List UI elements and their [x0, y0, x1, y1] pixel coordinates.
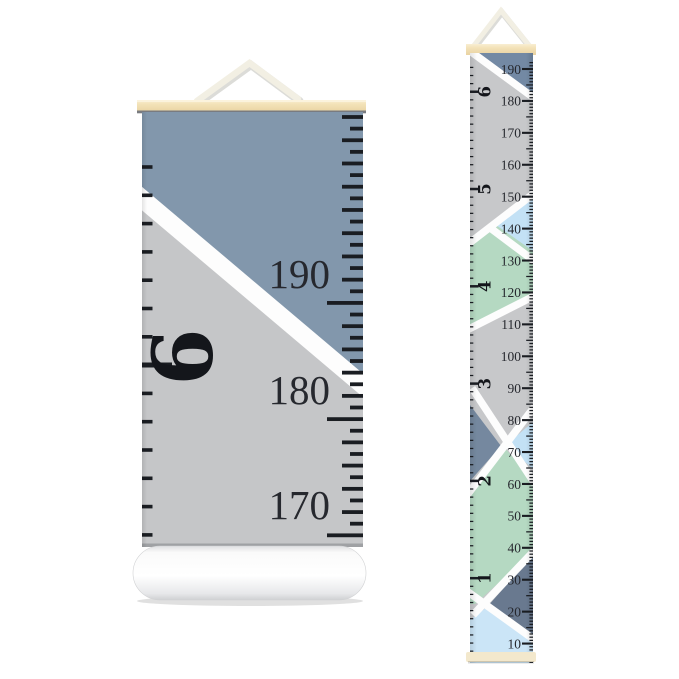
full-cm-minor-tick: [529, 640, 533, 641]
full-cm-major-tick: [522, 451, 533, 453]
full-cm-minor-tick: [529, 225, 533, 226]
full-cm-minor-tick: [529, 155, 533, 156]
full-cm-label: 150: [501, 189, 522, 204]
full-inch-tick: [470, 269, 473, 270]
full-cm-minor-tick: [529, 391, 533, 392]
full-cm-minor-tick: [529, 448, 533, 449]
full-cm-minor-tick: [526, 276, 533, 277]
full-cm-minor-tick: [529, 238, 533, 239]
closeup-cm-tick: [350, 452, 363, 456]
full-cm-minor-tick: [529, 368, 533, 369]
full-cm-minor-tick: [529, 305, 533, 306]
full-cm-minor-tick: [526, 499, 533, 500]
full-inch-tick: [470, 407, 473, 408]
full-cm-minor-tick: [529, 202, 533, 203]
full-cm-minor-tick: [529, 617, 533, 618]
full-cm-label: 160: [501, 158, 522, 173]
full-chart-canvas: 1901801701601501401301201101009080706050…: [463, 48, 538, 663]
full-cm-label: 120: [501, 285, 522, 300]
full-cm-minor-tick: [526, 404, 533, 405]
full-cm-minor-tick: [529, 234, 533, 235]
closeup-cm-tick: [350, 475, 363, 479]
full-cm-minor-tick: [529, 151, 533, 152]
full-inch-tick: [470, 488, 473, 489]
full-cm-label: 170: [501, 126, 522, 141]
full-cm-minor-tick: [529, 378, 533, 379]
closeup-cm-tick: [327, 301, 363, 305]
full-foot-numeral-text: 1: [476, 572, 495, 583]
full-cm-minor-tick: [529, 295, 533, 296]
full-inch-tick: [470, 213, 473, 214]
closeup-cm-tick: [350, 359, 363, 363]
full-cm-major-tick: [522, 323, 533, 325]
full-cm-minor-tick: [529, 257, 533, 258]
closeup-cm-tick: [342, 231, 363, 235]
full-inch-tick: [470, 521, 473, 522]
full-cm-minor-tick: [529, 289, 533, 290]
full-cm-minor-tick: [529, 321, 533, 322]
closeup-cm-tick: [350, 150, 363, 154]
full-cm-minor-tick: [529, 423, 533, 424]
full-cm-minor-tick: [526, 180, 533, 181]
full-inch-tick: [470, 156, 473, 157]
closeup-cm-tick: [350, 243, 363, 247]
full-inch-tick: [470, 140, 473, 141]
full-inch-tick: [470, 618, 473, 619]
closeup-cm-tick: [327, 533, 363, 537]
full-cm-major-tick: [522, 259, 533, 261]
full-cm-minor-tick: [529, 123, 533, 124]
full-foot-numeral: 1: [476, 572, 495, 583]
closeup-cm-tick: [342, 464, 363, 468]
closeup-cm-label: 190: [269, 251, 331, 297]
full-cm-minor-tick: [529, 458, 533, 459]
full-cm-major-tick: [522, 132, 533, 134]
full-cm-minor-tick: [529, 247, 533, 248]
full-cm-minor-tick: [529, 496, 533, 497]
full-inch-tick: [470, 561, 473, 562]
wood-bar-highlight: [137, 100, 366, 102]
closeup-cm-tick: [350, 336, 363, 340]
full-cm-minor-tick: [529, 349, 533, 350]
full-cm-minor-tick: [529, 592, 533, 593]
full-cm-minor-tick: [529, 407, 533, 408]
full-cm-minor-tick: [529, 525, 533, 526]
full-inch-tick: [470, 594, 473, 595]
full-cm-label: 50: [508, 509, 522, 524]
full-cm-minor-tick: [529, 384, 533, 385]
closeup-cm-tick: [350, 173, 363, 177]
full-cm-minor-tick: [529, 445, 533, 446]
full-cm-minor-tick: [526, 84, 533, 85]
full-cm-minor-tick: [529, 72, 533, 73]
closeup-cm-tick: [350, 406, 363, 410]
full-inch-tick: [470, 610, 473, 611]
full-cm-minor-tick: [529, 88, 533, 89]
full-cm-minor-tick: [529, 97, 533, 98]
full-cm-minor-tick: [529, 413, 533, 414]
full-cm-minor-tick: [529, 493, 533, 494]
full-cm-minor-tick: [529, 633, 533, 634]
full-inch-tick: [470, 115, 473, 116]
full-cm-minor-tick: [526, 627, 533, 628]
full-cm-minor-tick: [529, 215, 533, 216]
full-cm-minor-tick: [529, 605, 533, 606]
full-inch-tick: [470, 302, 473, 303]
full-inch-tick: [470, 237, 473, 238]
full-right-shade: [526, 53, 533, 663]
full-foot-numeral: 2: [476, 475, 495, 486]
closeup-cm-tick: [342, 510, 363, 514]
closeup-cm-tick: [327, 417, 363, 421]
full-cm-minor-tick: [526, 435, 533, 436]
full-cm-minor-tick: [529, 630, 533, 631]
full-cm-minor-tick: [529, 570, 533, 571]
full-cm-minor-tick: [529, 534, 533, 535]
full-cm-minor-tick: [526, 212, 533, 213]
full-cm-label: 20: [508, 604, 522, 619]
full-inch-tick: [470, 83, 473, 84]
closeup-cm-tick: [342, 115, 363, 119]
full-cm-minor-tick: [529, 231, 533, 232]
full-inch-tick: [470, 132, 473, 133]
full-cm-minor-tick: [526, 116, 533, 117]
full-cm-minor-tick: [529, 91, 533, 92]
full-cm-label: 60: [508, 477, 522, 492]
full-cm-minor-tick: [529, 142, 533, 143]
full-inch-tick: [470, 513, 473, 514]
full-inch-tick: [470, 148, 473, 149]
full-cm-minor-tick: [529, 624, 533, 625]
full-cm-minor-tick: [529, 343, 533, 344]
full-inch-tick: [470, 569, 473, 570]
full-inch-tick: [470, 172, 473, 173]
full-cm-label: 190: [501, 62, 522, 77]
full-inch-tick: [470, 164, 473, 165]
full-cm-minor-tick: [526, 308, 533, 309]
full-cm-major-tick: [522, 483, 533, 485]
full-cm-major-tick: [522, 579, 533, 581]
full-cm-minor-tick: [529, 416, 533, 417]
full-cm-minor-tick: [529, 209, 533, 210]
full-cm-minor-tick: [529, 103, 533, 104]
full-cm-minor-tick: [529, 317, 533, 318]
full-cm-label: 110: [501, 317, 521, 332]
growth-chart-product-photo: 1901801706: [0, 0, 679, 679]
full-inch-tick: [470, 440, 473, 441]
full-foot-numeral-text: 5: [476, 183, 495, 194]
full-inch-tick: [470, 75, 473, 76]
full-inch-tick: [470, 399, 473, 400]
full-cm-minor-tick: [529, 426, 533, 427]
full-cm-minor-tick: [529, 502, 533, 503]
full-cm-minor-tick: [529, 464, 533, 465]
closeup-cm-tick: [350, 382, 363, 386]
full-cm-major-tick: [522, 355, 533, 357]
full-cm-minor-tick: [529, 582, 533, 583]
fabric-roll: [133, 546, 366, 600]
full-cm-minor-tick: [529, 126, 533, 127]
full-cm-minor-tick: [529, 330, 533, 331]
full-inch-tick: [470, 180, 473, 181]
closeup-cm-tick: [342, 487, 363, 491]
full-cm-minor-tick: [529, 394, 533, 395]
full-cm-minor-tick: [529, 646, 533, 647]
full-cm-minor-tick: [529, 222, 533, 223]
full-cm-label: 180: [501, 94, 522, 109]
full-inch-tick: [470, 342, 473, 343]
full-cm-label: 130: [501, 253, 522, 268]
full-cm-minor-tick: [529, 544, 533, 545]
full-cm-label: 40: [508, 541, 522, 556]
full-cm-minor-tick: [529, 298, 533, 299]
full-cm-minor-tick: [529, 522, 533, 523]
full-cm-minor-tick: [529, 538, 533, 539]
full-cm-minor-tick: [529, 566, 533, 567]
full-cm-major-tick: [522, 643, 533, 645]
full-inch-tick: [470, 634, 473, 635]
full-cm-minor-tick: [529, 442, 533, 443]
full-inch-tick: [470, 456, 473, 457]
full-inch-tick: [470, 472, 473, 473]
full-cm-minor-tick: [529, 429, 533, 430]
full-cm-minor-tick: [529, 75, 533, 76]
full-cm-minor-tick: [529, 352, 533, 353]
full-cm-minor-tick: [529, 362, 533, 363]
full-cm-minor-tick: [529, 193, 533, 194]
full-cm-minor-tick: [529, 359, 533, 360]
full-cm-minor-tick: [529, 576, 533, 577]
full-cm-major-tick: [522, 228, 533, 230]
full-cm-minor-tick: [529, 528, 533, 529]
full-inch-tick: [470, 651, 473, 652]
full-cm-minor-tick: [529, 400, 533, 401]
full-inch-tick: [470, 586, 473, 587]
full-cm-major-tick: [522, 547, 533, 549]
full-cm-minor-tick: [529, 78, 533, 79]
full-cm-major-tick: [522, 196, 533, 198]
full-inch-tick: [470, 334, 473, 335]
full-cm-minor-tick: [529, 113, 533, 114]
full-inch-tick: [470, 359, 473, 360]
full-inch-tick: [470, 294, 473, 295]
full-foot-numeral-text: 4: [476, 281, 495, 292]
full-inch-tick: [470, 229, 473, 230]
full-cm-minor-tick: [529, 455, 533, 456]
full-cm-minor-tick: [526, 595, 533, 596]
full-cm-minor-tick: [529, 550, 533, 551]
full-cm-minor-tick: [529, 585, 533, 586]
closeup-cm-tick: [342, 348, 363, 352]
full-inch-tick: [470, 642, 473, 643]
full-cm-label: 80: [508, 413, 522, 428]
full-inch-tick: [470, 545, 473, 546]
closeup-canvas: 1901801706: [133, 112, 372, 547]
closeup-cm-tick: [350, 196, 363, 200]
full-inch-tick: [470, 448, 473, 449]
full-inch-tick: [470, 99, 473, 100]
full-inch-tick: [470, 310, 473, 311]
full-cm-minor-tick: [529, 573, 533, 574]
full-cm-minor-tick: [526, 467, 533, 468]
full-inch-tick: [470, 124, 473, 125]
full-cm-minor-tick: [529, 560, 533, 561]
full-inch-tick: [470, 253, 473, 254]
closeup-cm-tick: [342, 138, 363, 142]
full-cm-minor-tick: [529, 311, 533, 312]
full-cm-minor-tick: [529, 145, 533, 146]
full-inch-tick: [470, 375, 473, 376]
full-cm-major-tick: [522, 387, 533, 389]
full-foot-numeral-text: 6: [476, 86, 495, 97]
full-inch-tick: [470, 537, 473, 538]
full-cm-minor-tick: [529, 263, 533, 264]
closeup-cm-tick: [350, 313, 363, 317]
full-cm-minor-tick: [529, 119, 533, 120]
full-inch-tick: [470, 205, 473, 206]
full-cm-minor-tick: [529, 139, 533, 140]
full-cm-minor-tick: [529, 621, 533, 622]
full-inch-tick: [470, 464, 473, 465]
full-cm-major-tick: [522, 291, 533, 293]
full-cm-label: 100: [501, 349, 522, 364]
full-cm-minor-tick: [529, 410, 533, 411]
closeup-cm-tick: [350, 266, 363, 270]
full-inch-tick: [470, 553, 473, 554]
full-cm-minor-tick: [529, 171, 533, 172]
full-inch-tick: [470, 391, 473, 392]
full-cm-label: 70: [508, 445, 522, 460]
full-cm-minor-tick: [526, 531, 533, 532]
full-cm-minor-tick: [526, 244, 533, 245]
full-cm-minor-tick: [529, 250, 533, 251]
full-cm-minor-tick: [529, 186, 533, 187]
full-cm-minor-tick: [529, 541, 533, 542]
full-cm-major-tick: [522, 611, 533, 613]
closeup-cm-tick: [342, 440, 363, 444]
full-cm-minor-tick: [529, 218, 533, 219]
full-cm-minor-tick: [529, 161, 533, 162]
full-cm-minor-tick: [529, 81, 533, 82]
closeup-cm-tick: [342, 324, 363, 328]
full-cm-minor-tick: [526, 148, 533, 149]
canvas-left-shade: [142, 112, 147, 547]
full-foot-numeral: 4: [476, 281, 495, 292]
full-cm-minor-tick: [529, 65, 533, 66]
closeup-cm-tick: [350, 522, 363, 526]
full-cm-minor-tick: [529, 557, 533, 558]
full-cm-minor-tick: [529, 614, 533, 615]
closeup-cm-tick: [350, 289, 363, 293]
full-cm-minor-tick: [529, 266, 533, 267]
full-cm-minor-tick: [526, 563, 533, 564]
full-cm-major-tick: [522, 515, 533, 517]
full-cm-minor-tick: [529, 94, 533, 95]
full-cm-minor-tick: [529, 471, 533, 472]
full-cm-major-tick: [522, 419, 533, 421]
closeup-foot-numeral-text: 6: [136, 328, 232, 385]
closeup-cm-tick: [350, 220, 363, 224]
full-cm-major-tick: [522, 100, 533, 102]
full-cm-minor-tick: [529, 177, 533, 178]
full-foot-numeral-text: 3: [476, 378, 495, 389]
full-inch-tick: [470, 496, 473, 497]
full-cm-minor-tick: [529, 285, 533, 286]
full-cm-minor-tick: [529, 314, 533, 315]
full-cm-label: 140: [501, 221, 522, 236]
closeup-cm-label: 180: [269, 367, 331, 413]
full-cm-minor-tick: [529, 509, 533, 510]
full-cm-minor-tick: [526, 372, 533, 373]
full-inch-tick: [470, 278, 473, 279]
full-cm-minor-tick: [526, 340, 533, 341]
full-foot-numeral: 3: [476, 378, 495, 389]
closeup-cm-tick: [342, 208, 363, 212]
full-left-shade: [470, 53, 477, 663]
full-foot-numeral: 6: [476, 86, 495, 97]
full-cm-minor-tick: [529, 107, 533, 108]
full-inch-tick: [470, 432, 473, 433]
closeup-cm-tick: [342, 255, 363, 259]
full-cm-label: 10: [508, 636, 522, 651]
full-cm-minor-tick: [529, 637, 533, 638]
full-cm-minor-tick: [529, 375, 533, 376]
full-cm-minor-tick: [529, 490, 533, 491]
full-cm-minor-tick: [529, 487, 533, 488]
full-cm-minor-tick: [529, 254, 533, 255]
full-cm-minor-tick: [529, 273, 533, 274]
bottom-bar-shadow: [468, 661, 534, 664]
full-cm-minor-tick: [529, 518, 533, 519]
closeup-cm-label: 170: [269, 482, 331, 528]
full-cm-minor-tick: [529, 301, 533, 302]
full-cm-minor-tick: [529, 397, 533, 398]
full-inch-tick: [470, 326, 473, 327]
full-cm-minor-tick: [529, 183, 533, 184]
full-cm-minor-tick: [529, 135, 533, 136]
full-cm-minor-tick: [529, 199, 533, 200]
full-cm-minor-tick: [529, 474, 533, 475]
full-foot-numeral-text: 2: [476, 475, 495, 486]
full-inch-tick: [470, 221, 473, 222]
full-cm-minor-tick: [529, 333, 533, 334]
full-cm-minor-tick: [529, 601, 533, 602]
full-inch-tick: [470, 626, 473, 627]
closeup-cm-tick: [350, 499, 363, 503]
closeup-cm-tick: [342, 394, 363, 398]
closeup-cm-tick: [342, 278, 363, 282]
full-cm-label: 90: [508, 381, 522, 396]
full-cm-label: 30: [508, 573, 522, 588]
full-cm-minor-tick: [529, 346, 533, 347]
full-cm-minor-tick: [529, 167, 533, 168]
wood-bottom-bar: [466, 652, 536, 662]
full-inch-tick: [470, 351, 473, 352]
full-cm-minor-tick: [529, 337, 533, 338]
full-inch-tick: [470, 245, 473, 246]
full-cm-minor-tick: [529, 439, 533, 440]
full-cm-minor-tick: [529, 649, 533, 650]
full-cm-minor-tick: [529, 190, 533, 191]
full-cm-minor-tick: [529, 598, 533, 599]
full-inch-tick: [470, 529, 473, 530]
closeup-foot-numeral: 6: [136, 328, 232, 385]
full-inch-tick: [470, 367, 473, 368]
full-cm-minor-tick: [529, 506, 533, 507]
closeup-cm-tick: [342, 162, 363, 166]
full-inch-tick: [470, 67, 473, 68]
full-cm-minor-tick: [529, 269, 533, 270]
